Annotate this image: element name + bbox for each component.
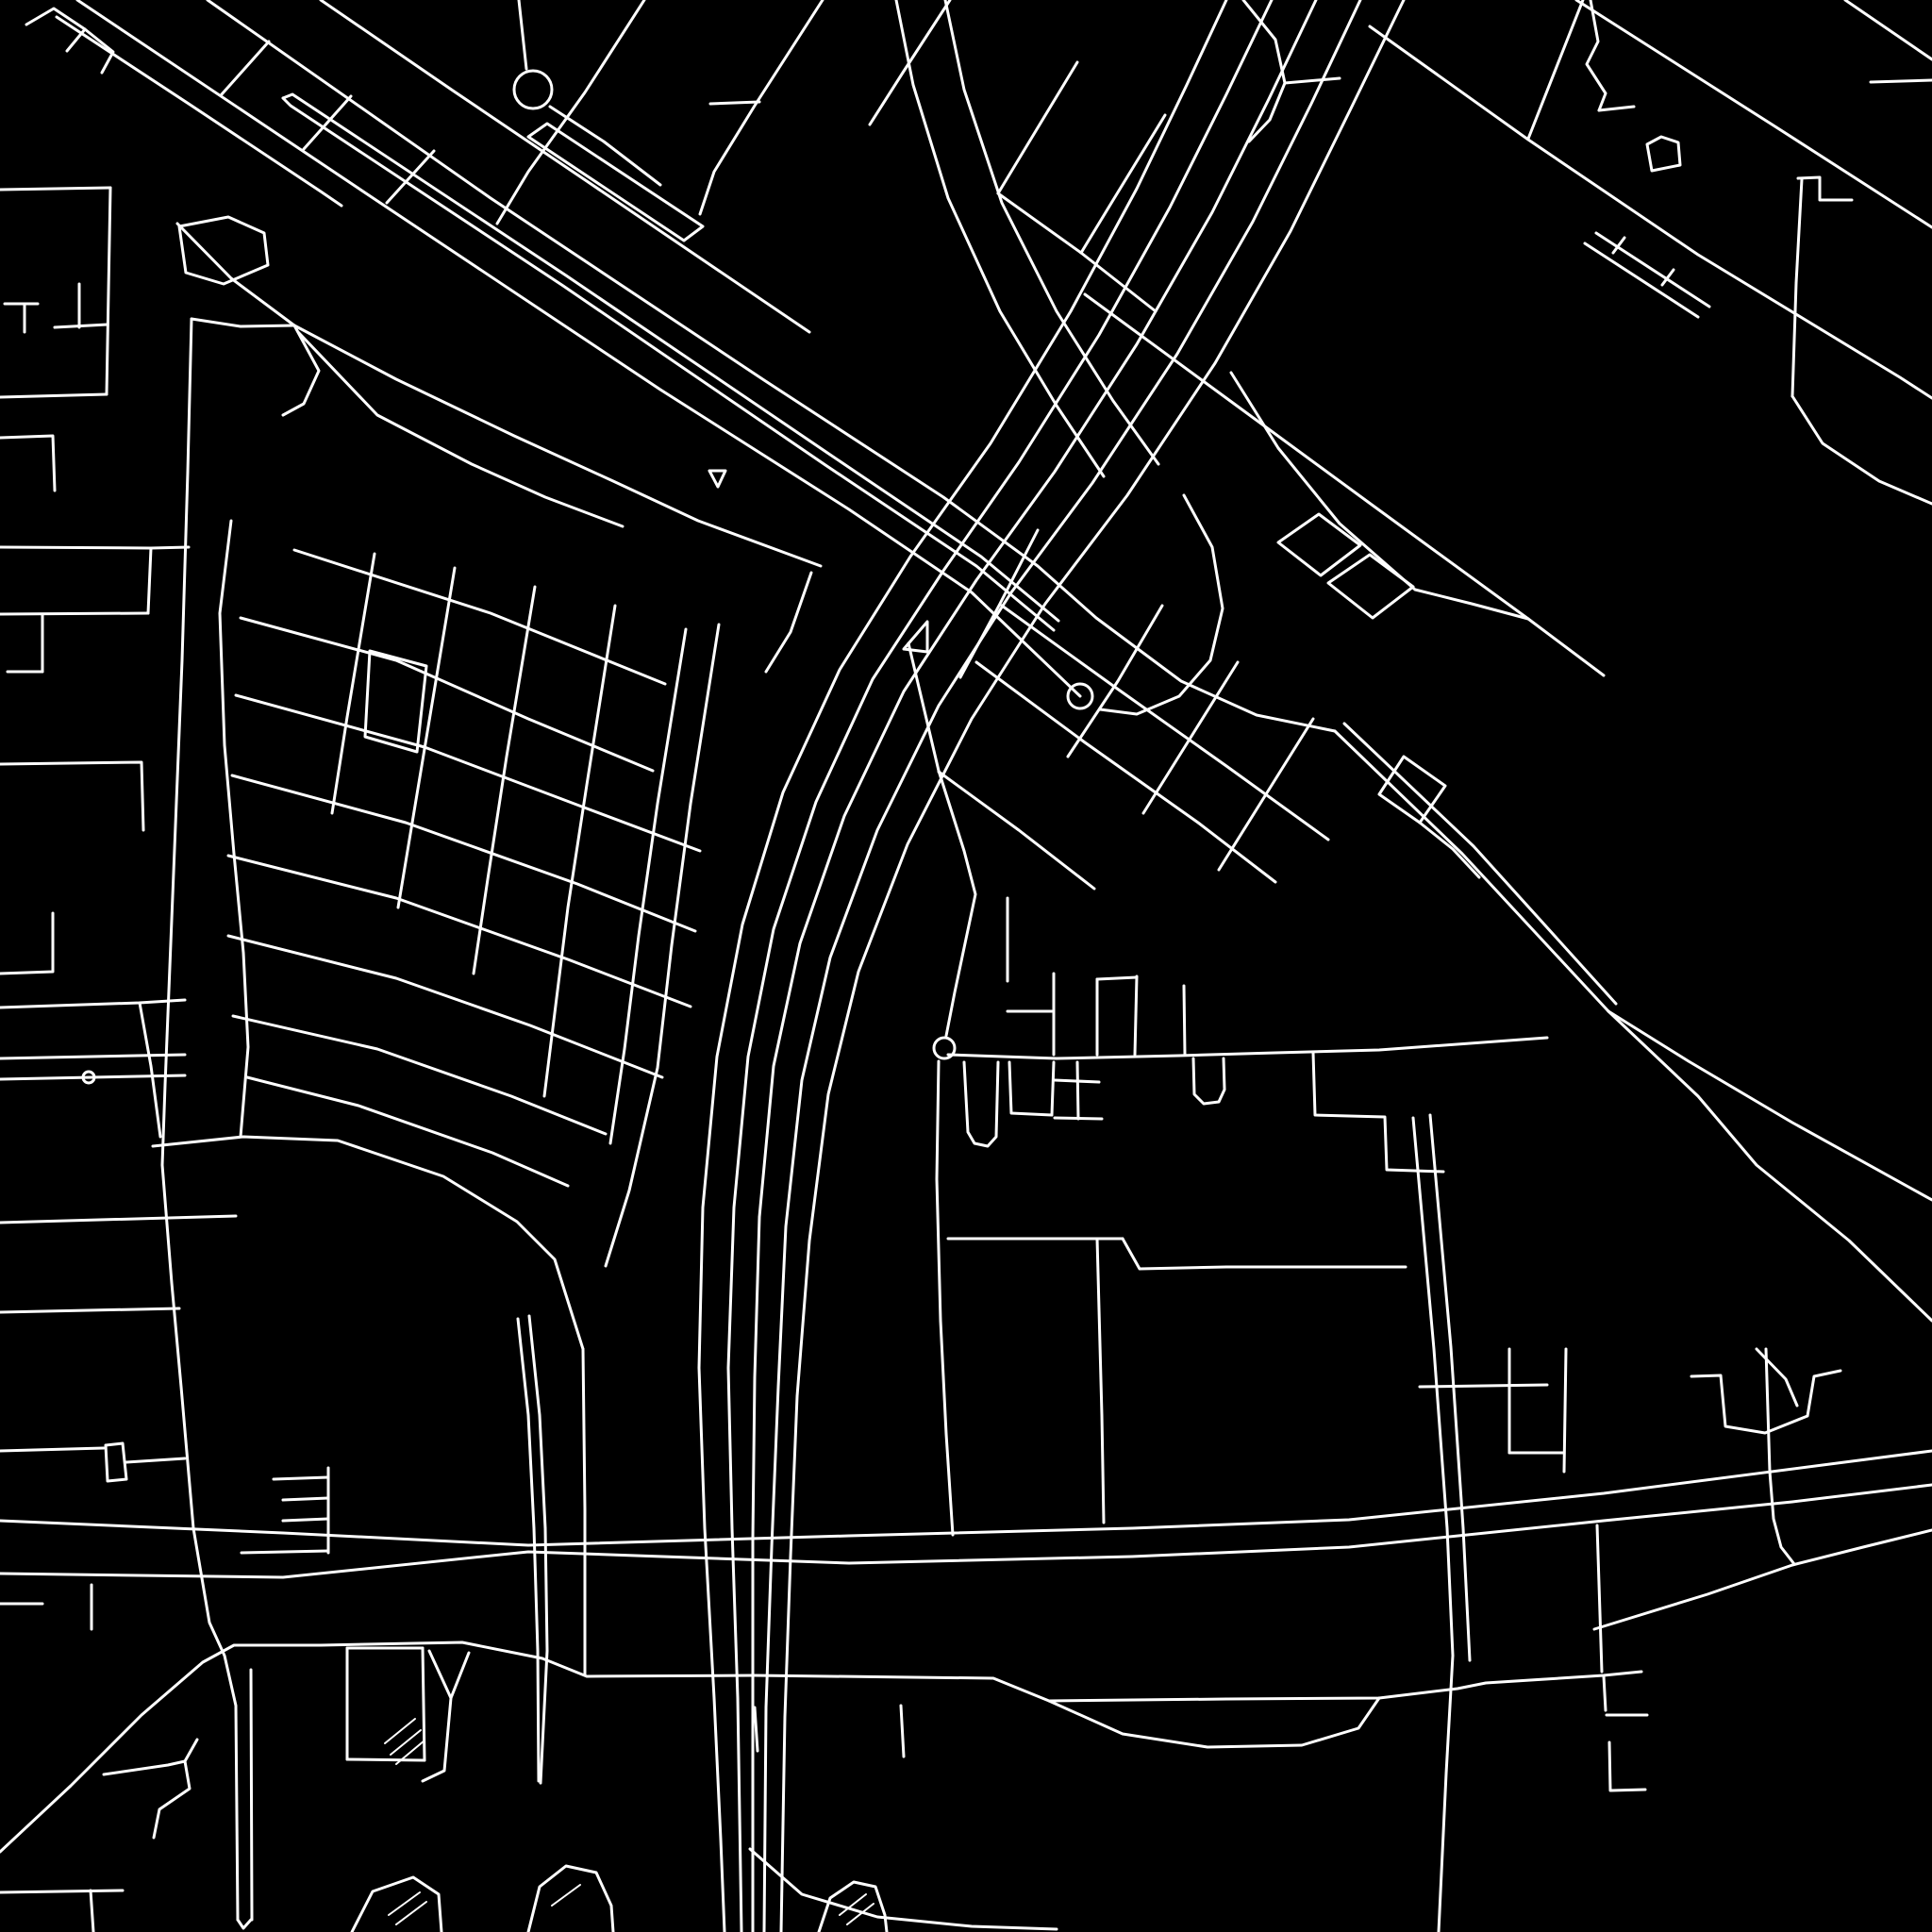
- road-street-v620: [583, 1349, 585, 1675]
- road-ne-band-upper: [1576, 0, 1932, 227]
- road-arc-southwest-2: [528, 1866, 613, 1932]
- road-residential-ew-street: [948, 1038, 1547, 1058]
- road-nbhd-row-e: [228, 856, 691, 1007]
- road-hatch-block-curve: [423, 1651, 451, 1781]
- road-wgrid-h650: [0, 613, 148, 614]
- road-wgrid-v650: [148, 548, 151, 613]
- road-comb-v2: [1609, 1742, 1610, 1790]
- road-west-street-463: [0, 436, 55, 491]
- road-tc-cross-1: [497, 0, 644, 224]
- road-stub-v3: [1184, 986, 1185, 1055]
- road-arc-sw2-hatch: [552, 1885, 580, 1906]
- road-tick-south-2: [901, 1706, 904, 1757]
- road-nbhd-bound-south: [153, 1137, 583, 1349]
- road-island-triangle-1: [709, 471, 725, 487]
- road-swblock-conn: [126, 1458, 185, 1462]
- road-blockb-h: [1097, 977, 1137, 979]
- road-hook-top: [1243, 0, 1285, 142]
- road-ladder-t3: [283, 1519, 328, 1521]
- road-tc-h-stub: [710, 102, 759, 104]
- road-swblock-h1537: [0, 1448, 104, 1451]
- road-corridor-se-branch: [1608, 1011, 1932, 1200]
- road-hook-top-stub: [1285, 78, 1340, 83]
- road-comb-v1: [1597, 1525, 1602, 1672]
- road-nbhd-row-f: [228, 936, 662, 1077]
- road-wgrid-h580: [0, 547, 189, 548]
- road-fork-hook: [283, 325, 319, 415]
- road-freeway-2: [728, 0, 1272, 1932]
- road-tc-parallel-upper: [321, 0, 809, 332]
- road-pocket-c-tail: [1420, 823, 1479, 877]
- road-wgrid-double-a: [0, 1055, 185, 1058]
- road-nbhd-cross-3: [474, 587, 535, 974]
- road-loop-spoke-se: [550, 107, 660, 185]
- road-h-street-v: [1077, 1062, 1078, 1119]
- road-ne-vline: [1792, 179, 1802, 396]
- road-loop-spoke-top: [519, 0, 526, 69]
- road-wgrid-double-b: [0, 1075, 185, 1079]
- road-hatch-block-bottom: [347, 1759, 425, 1760]
- road-knot-diagonal: [1594, 1530, 1932, 1629]
- road-wgrid-branch: [140, 1003, 160, 1137]
- road-hatch-block-right: [423, 1648, 425, 1760]
- road-nbhd-row-a: [294, 550, 665, 684]
- road-arterial-sw-curve-east: [0, 1642, 1641, 1852]
- road-nbhd-bound-west: [220, 521, 248, 1137]
- road-long-diagonal-mid: [1085, 294, 1604, 675]
- road-campus-block-v: [1097, 1239, 1104, 1523]
- road-freeway-5: [781, 0, 1404, 1932]
- road-ramp-southeast: [1231, 373, 1528, 619]
- road-vleft-connector: [192, 319, 294, 326]
- road-tc-block: [528, 124, 703, 241]
- road-cul-de-sac-2: [1193, 1058, 1224, 1104]
- road-pocket-block-a: [1278, 514, 1360, 575]
- road-median-needle-b: [283, 98, 1054, 630]
- road-pocket-ne-arc: [1757, 1349, 1797, 1406]
- road-knot-vertical: [1766, 1349, 1794, 1564]
- road-nbhd-row-b: [241, 618, 653, 771]
- road-block-u: [1009, 1062, 1054, 1115]
- road-band-pocket-a: [1585, 243, 1698, 317]
- road-avenue-nw-ne-line: [208, 0, 1335, 731]
- road-band-pocket-b: [1596, 233, 1709, 307]
- node-neighborhood-roundabout: [934, 1038, 955, 1058]
- road-swblock-dloop: [106, 1443, 126, 1481]
- road-sw-fork: [104, 1761, 185, 1774]
- road-nw-block-top: [0, 188, 110, 190]
- road-arterial-ew-1: [0, 1451, 1932, 1545]
- road-nbhd-row-h: [247, 1077, 568, 1186]
- road-se-cross-1: [960, 530, 1038, 677]
- road-q-block-1: [998, 62, 1077, 193]
- road-swblock-h1295: [0, 1216, 236, 1223]
- road-long-street-west-uturn: [238, 1920, 251, 1928]
- road-arc-bottom-center: [819, 1882, 887, 1932]
- road-avenue-rung-1: [222, 42, 269, 94]
- road-sw-v2005: [91, 1890, 93, 1932]
- road-ladder-t1: [274, 1477, 328, 1479]
- road-tc-cross-3: [870, 0, 950, 125]
- road-ns-road-east-1: [1413, 1118, 1453, 1932]
- road-nw-block-bottom: [0, 394, 107, 397]
- road-corridor-se-tail: [1608, 1011, 1932, 1321]
- road-long-street-west-twin: [251, 1670, 252, 1920]
- road-nbhd-cross-6: [606, 625, 719, 1266]
- road-nbhd-cross-2: [398, 568, 455, 908]
- road-se-steps: [1313, 1053, 1443, 1172]
- road-hatch-stroke-2: [391, 1730, 421, 1755]
- road-campus-block-bend: [1123, 1239, 1406, 1269]
- road-sw-fork-b: [154, 1761, 190, 1838]
- road-ne-wiggle-stub: [1599, 107, 1634, 110]
- road-comb-v1b: [1604, 1676, 1606, 1710]
- road-q-block-2: [1081, 115, 1165, 253]
- street-network-map: [0, 0, 1932, 1932]
- road-freeway-4: [764, 0, 1360, 1932]
- road-ramp-bottom-east: [750, 1849, 1057, 1929]
- road-freeway-1: [699, 0, 1226, 1932]
- road-nw-block-t-h: [55, 325, 108, 327]
- road-sw-h2005: [0, 1890, 123, 1892]
- road-se-node-street: [939, 772, 1094, 889]
- road-wgrid-h810: [0, 762, 143, 830]
- road-pocket-block-b: [1328, 555, 1413, 618]
- road-ne-band-lower: [1370, 26, 1932, 398]
- road-ladder-base: [241, 1551, 328, 1553]
- road-tick-south-1: [755, 1707, 758, 1751]
- road-corridor-se-b: [1344, 724, 1616, 1004]
- road-ne-band-cross: [1528, 0, 1583, 139]
- road-se-cross-4: [1219, 719, 1313, 870]
- road-br-h1470: [1420, 1385, 1547, 1387]
- road-se-cross-2: [1068, 606, 1162, 757]
- road-nbhd-block: [365, 651, 426, 752]
- road-nbhd-row-d: [232, 775, 695, 931]
- node-loop-court: [514, 71, 552, 108]
- road-fork-lower: [298, 332, 623, 526]
- road-arc-sw-hatch-1: [389, 1892, 420, 1915]
- road-hex-block: [179, 217, 268, 284]
- road-fork-upper: [294, 325, 821, 566]
- road-ne-corner-line: [1845, 0, 1932, 59]
- road-hatch-block-line: [451, 1653, 469, 1698]
- road-nbhd-row-c: [236, 695, 700, 851]
- road-swblock-h1390: [0, 1308, 179, 1312]
- road-ne-pent-block: [1647, 137, 1680, 171]
- street-map-viewport: [0, 0, 1932, 1932]
- road-ne-brackets: [1798, 177, 1852, 200]
- road-nbhd-cross-5: [610, 629, 686, 1143]
- road-pocket-curve-south: [1049, 1698, 1379, 1747]
- road-blockb-v2: [1135, 976, 1137, 1055]
- road-p-connector: [998, 193, 1156, 311]
- road-hatch-stroke-1: [385, 1719, 415, 1743]
- road-ne-edge-stub: [1871, 80, 1932, 82]
- road-wedge-street: [766, 573, 811, 672]
- road-wgrid-l970: [0, 913, 53, 974]
- road-tc-cross-2: [700, 0, 823, 214]
- road-wgrid-h1065: [0, 1000, 185, 1008]
- road-freeway-3: [753, 0, 1316, 1932]
- road-ladder-t2: [283, 1498, 328, 1500]
- road-nbhd-cross-4: [544, 606, 615, 1096]
- road-ne-curve: [1792, 396, 1932, 504]
- road-cul-de-sac-1: [964, 1062, 998, 1146]
- road-sw-fork-a: [185, 1740, 197, 1761]
- road-comb-h2: [1611, 1790, 1645, 1790]
- road-nw-block-right: [107, 188, 110, 394]
- road-se-nbhd-boundary-s: [937, 1061, 953, 1535]
- road-se-row-2: [1002, 606, 1328, 840]
